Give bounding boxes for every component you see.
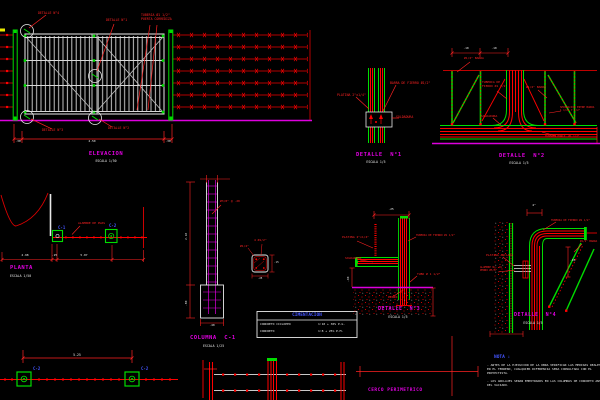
d3-tuberia-label: TUBERIA DE FIERRO Ø1 1/2" — [416, 234, 455, 237]
d3-platina-label: PLATINA 2"x1/4" — [342, 236, 369, 240]
title-detalle1: DETALLE N°1 — [356, 152, 402, 159]
planta-c2-label: C-2 — [109, 223, 116, 228]
d3-soldadura-label: SOLDADURA — [345, 257, 361, 261]
col-sec-stirrup-label: Ø1/4" — [240, 245, 249, 249]
bottom-plan-drawing — [0, 350, 178, 386]
scale-elevacion: ESCALA 1/50 — [95, 159, 116, 163]
nota-item-2: - LOS ANCLAJES SERAN EMPOTRADOS EN LAS C… — [487, 380, 600, 388]
elev-dim-center: 4.50 — [88, 140, 95, 144]
planta-dim1: 4.98 — [21, 254, 28, 258]
scale-detalle3: ESCALA 1/5 — [388, 315, 407, 319]
planta-c1-label: C-1 — [58, 225, 65, 230]
col-dim-footing: .80 — [185, 301, 189, 306]
scale-detalle1: ESCALA 1/5 — [366, 160, 385, 164]
table-r2-value: 1:8 + 25% P.M. — [318, 330, 343, 334]
planta-alambre-label: ALAMBRE DE PUAS — [78, 222, 105, 226]
d3-dim-top: .25 — [388, 208, 393, 212]
columna-drawing — [186, 175, 275, 326]
d4-dim-top: 4" — [532, 204, 536, 208]
col-dim-width: .40 — [209, 324, 214, 328]
detalle3-drawing — [350, 211, 436, 316]
d4-barra-label: Ø1/2" BARRA — [580, 240, 597, 243]
bplan-c2-right: C-2 — [141, 366, 148, 371]
bottom-misc-dims — [356, 336, 478, 396]
callout-detalle1: DETALLE N°1 — [106, 18, 127, 22]
d2-dim1: .10 — [463, 47, 468, 51]
callout-tuberia-puerta: TUBERIA Ø1 1/2" PUERTA CORREDIZA — [141, 13, 172, 21]
d2-tuberia-label: TUBERIA DE FIERRO Ø1 1/2" — [482, 81, 507, 89]
cad-linework — [0, 0, 600, 400]
d2-soldadura-label: SOLDADURA — [481, 115, 497, 119]
bplan-c2-left: C-2 — [33, 366, 40, 371]
cad-sheet: DETALLE N°4 DETALLE N°1 TUBERIA Ø1 1/2" … — [0, 0, 600, 400]
bottom-drawing-label: CERCO PERIMETRICO — [368, 388, 423, 394]
nota-header: NOTA : — [494, 355, 510, 361]
d2-barra-top-label: Ø1/2" BARRA — [464, 57, 484, 61]
d3-perno-label: PERNO — [388, 296, 397, 300]
callout-detalle4: DETALLE N°4 — [38, 11, 59, 15]
planta-dim3: 5.07 — [80, 254, 87, 258]
table-r1-name: CONCRETO CICLOPEO — [260, 323, 291, 327]
detalle1-drawing — [356, 68, 399, 143]
d4-alambre-label: ALAMBRE No. 16 PERNO Ø5/8" — [480, 266, 502, 272]
scale-detalle2: ESCALA 1/5 — [509, 161, 528, 165]
col-rebar-label: Ø3/8" @ .20 — [220, 200, 240, 204]
callout-detalle3: DETALLE N°3 — [42, 128, 63, 132]
title-columna: COLUMNA C-1 — [190, 335, 236, 342]
d1-barra-label: BARRA DE FIERRO Ø1/2" — [390, 81, 430, 85]
col-dim-height: 2.10 — [185, 233, 189, 240]
scale-detalle4: ESCALA 1/5 — [523, 321, 542, 325]
col-sec-dim-h: .15 — [274, 261, 279, 264]
bottom-elevation-drawing — [203, 358, 346, 400]
table-r2-name: CONCRETO — [260, 330, 274, 334]
d3-tubo-label: TUBO Ø 1 1/2" — [417, 273, 440, 277]
col-sec-bars-label: 4 Ø1/2" — [254, 239, 267, 243]
north-mark — [0, 29, 5, 32]
nota-item-1: - ANTES DE LA EJECUCION DE LA OBRA VERIF… — [487, 364, 600, 376]
d2-barra-right-label: Ø1/2" BARRA — [526, 86, 546, 90]
elev-dim-right: .30 — [165, 140, 170, 144]
d2-tuberia-horiz-label: TUBERIA HORIZ. Ø1 1/2" — [545, 135, 579, 138]
d3-dim-left: .40 — [347, 277, 351, 282]
table-header: CIMENTACION — [292, 313, 322, 319]
bplan-dim: 5.25 — [73, 353, 81, 357]
title-elevacion: ELEVACION — [89, 151, 123, 158]
planta-drawing — [1, 193, 148, 262]
d2-dim2: .10 — [491, 47, 496, 51]
detalle2-drawing — [432, 48, 600, 144]
planta-dim2: .25 — [52, 254, 57, 258]
d1-soldadura-label: SOLDADURA — [396, 115, 413, 119]
d4-dim-right: .45 — [570, 259, 575, 263]
d4-platina-label: PLATINA ANCLADA — [486, 254, 513, 258]
d2-separacion-label: SEPARACION ENTRE BARRA 1 1/2" Y 1/2" — [560, 106, 594, 112]
table-r1-value: 1:10 + 30% P.G. — [318, 323, 345, 327]
elevation-gate-drawing — [0, 15, 312, 143]
scale-planta: ESCALA 1/50 — [10, 274, 31, 278]
scale-columna: ESCALA 1/25 — [203, 344, 224, 348]
d1-platina-label: PLATINA 2"x1/4" — [337, 93, 366, 97]
title-detalle3: DETALLE N°3 — [378, 306, 420, 312]
title-planta: PLANTA — [10, 265, 33, 272]
title-detalle4: DETALLE N°4 — [514, 312, 556, 318]
elev-dim-left: .30 — [15, 140, 20, 144]
col-sec-dim-w: .25 — [258, 277, 263, 280]
title-detalle2: DETALLE N°2 — [499, 153, 545, 160]
d4-tuberia-label: TUBERIA DE FIERRO Ø1 1/2" — [551, 219, 590, 222]
callout-detalle2: DETALLE N°2 — [108, 126, 129, 130]
